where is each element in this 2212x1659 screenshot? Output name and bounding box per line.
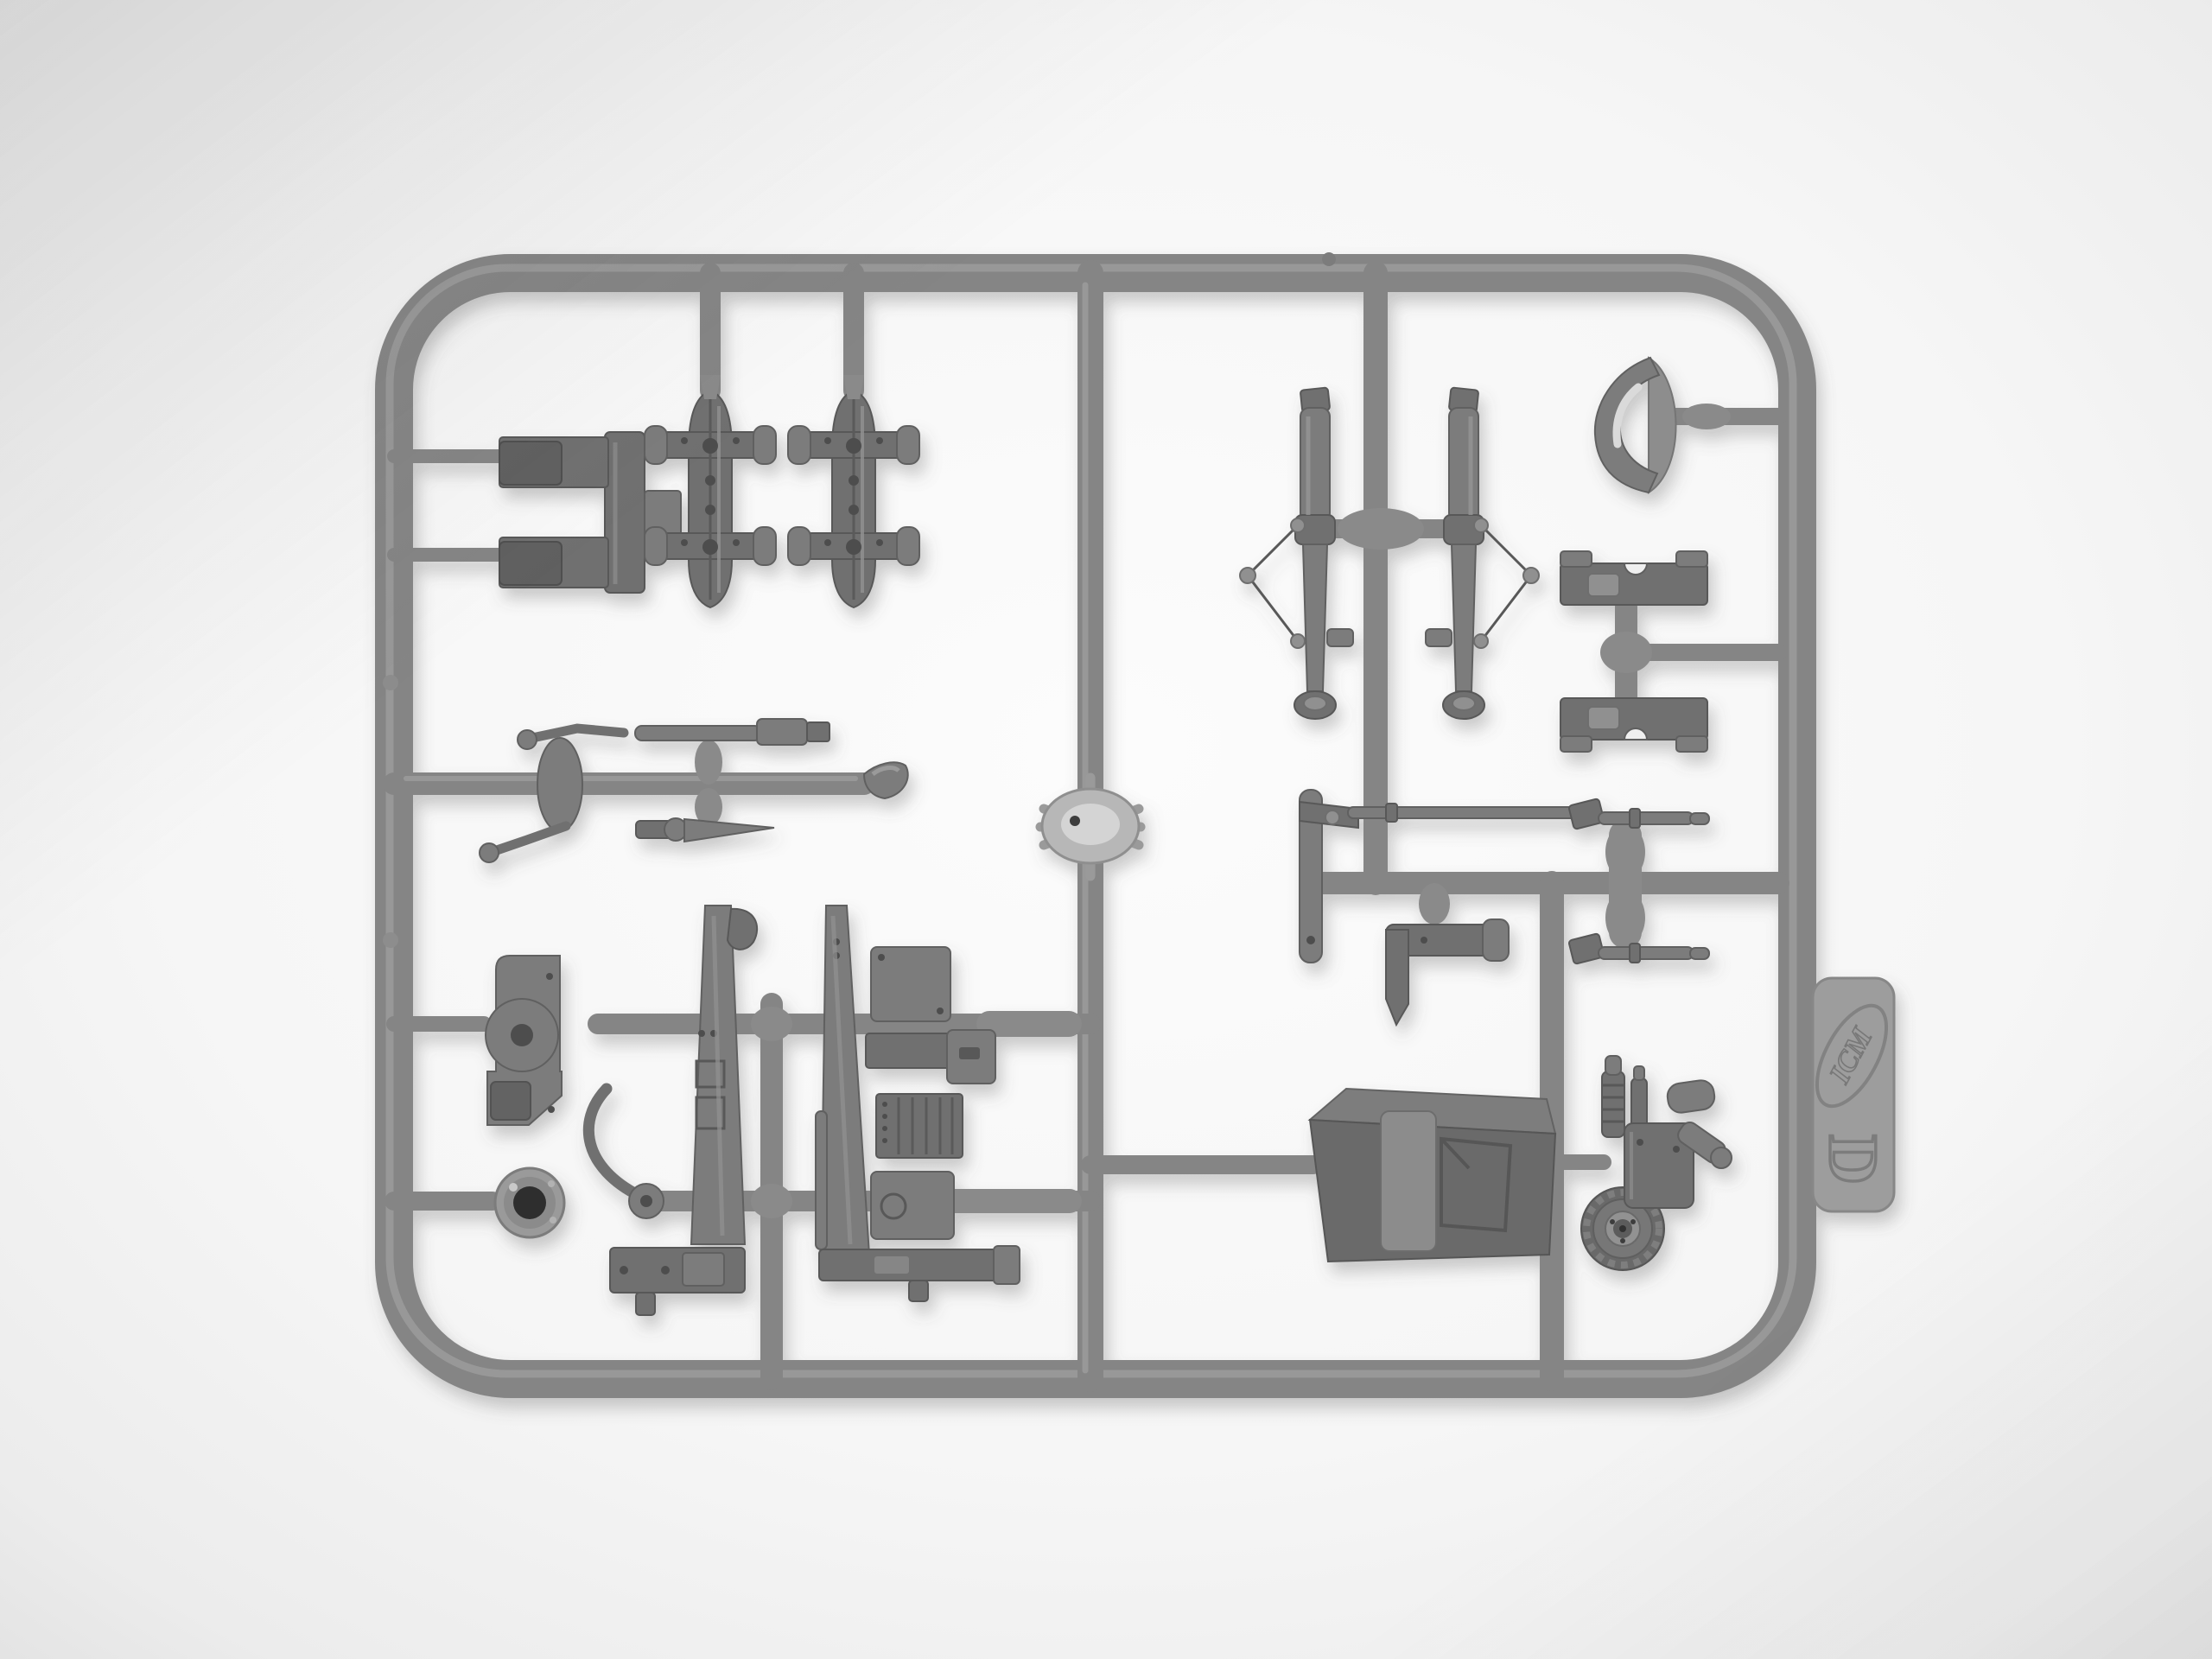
photo-stage: ICM D — [0, 0, 2212, 1659]
sprue-photo: ICM D — [0, 0, 2212, 1659]
photo-vignette — [0, 0, 2212, 1659]
